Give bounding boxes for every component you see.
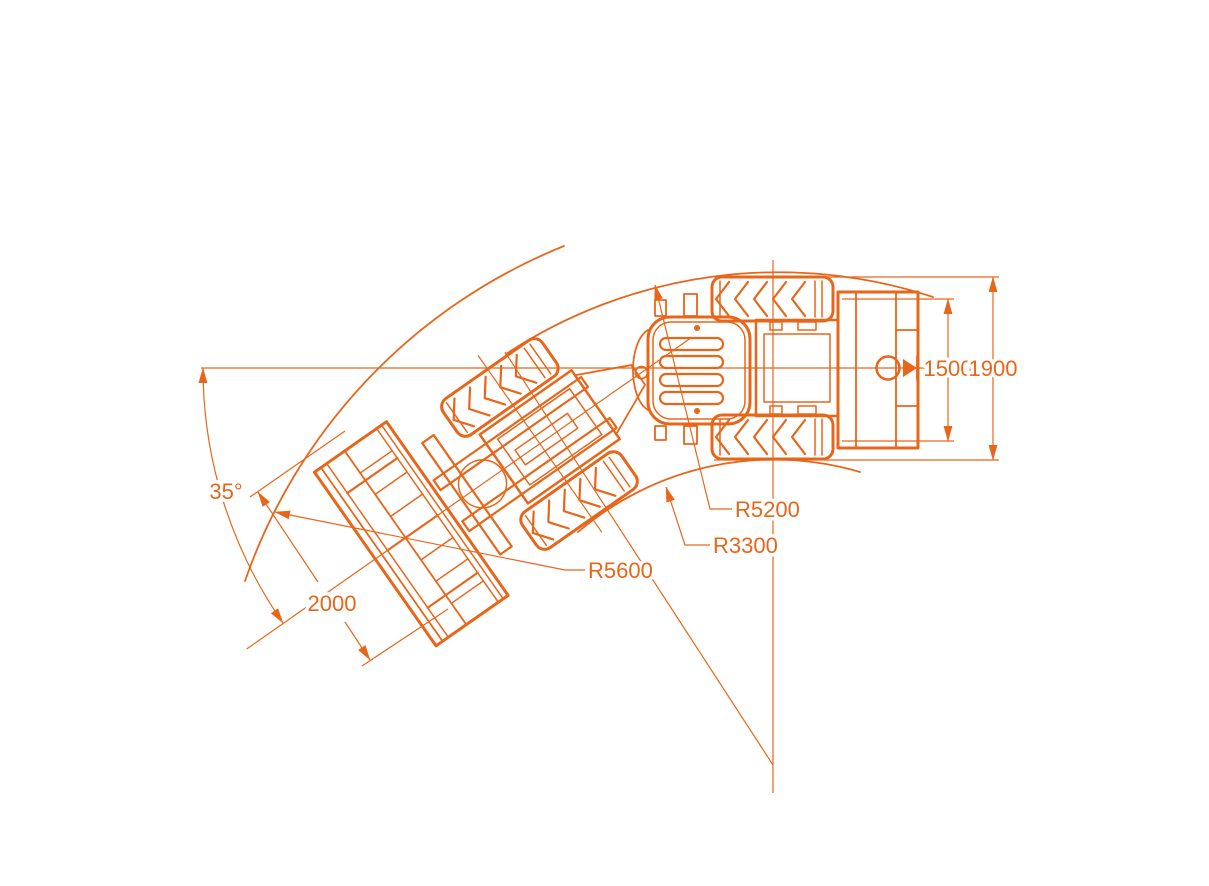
front-tire-left <box>438 335 562 440</box>
engine-hood <box>633 294 750 444</box>
hood-vent-slot <box>660 356 723 368</box>
lift-arm-right <box>462 418 616 531</box>
turning-radius-arcs <box>245 246 933 581</box>
hood-bolt <box>694 325 700 331</box>
radius-r5200-label: R5200 <box>735 497 800 522</box>
extension-line <box>250 431 345 497</box>
arc-r3300 <box>578 460 860 532</box>
wheel-track-label: 1500 <box>924 356 973 381</box>
technical-drawing: 35° 2000 R5600 R3300 R5200 1500 1900 <box>0 0 1209 886</box>
hood-vent-slot <box>660 374 723 386</box>
loader-turning-radius-diagram: 35° 2000 R5600 R3300 R5200 1500 1900 <box>0 0 1209 886</box>
arc-r5600 <box>245 246 564 581</box>
radius-r3300-label: R3300 <box>713 533 778 558</box>
articulation-angle-label: 35° <box>209 479 242 504</box>
hitch-pin-marker <box>903 359 917 377</box>
hood-bolt <box>694 408 700 414</box>
rear-counterweight <box>838 292 918 448</box>
overall-width-label: 1900 <box>969 356 1018 381</box>
extension-line <box>362 609 448 666</box>
leader-r3300 <box>666 487 710 545</box>
hood-vent-slot <box>660 392 723 404</box>
bucket-width-label: 2000 <box>308 591 357 616</box>
radius-r5600-label: R5600 <box>588 558 653 583</box>
